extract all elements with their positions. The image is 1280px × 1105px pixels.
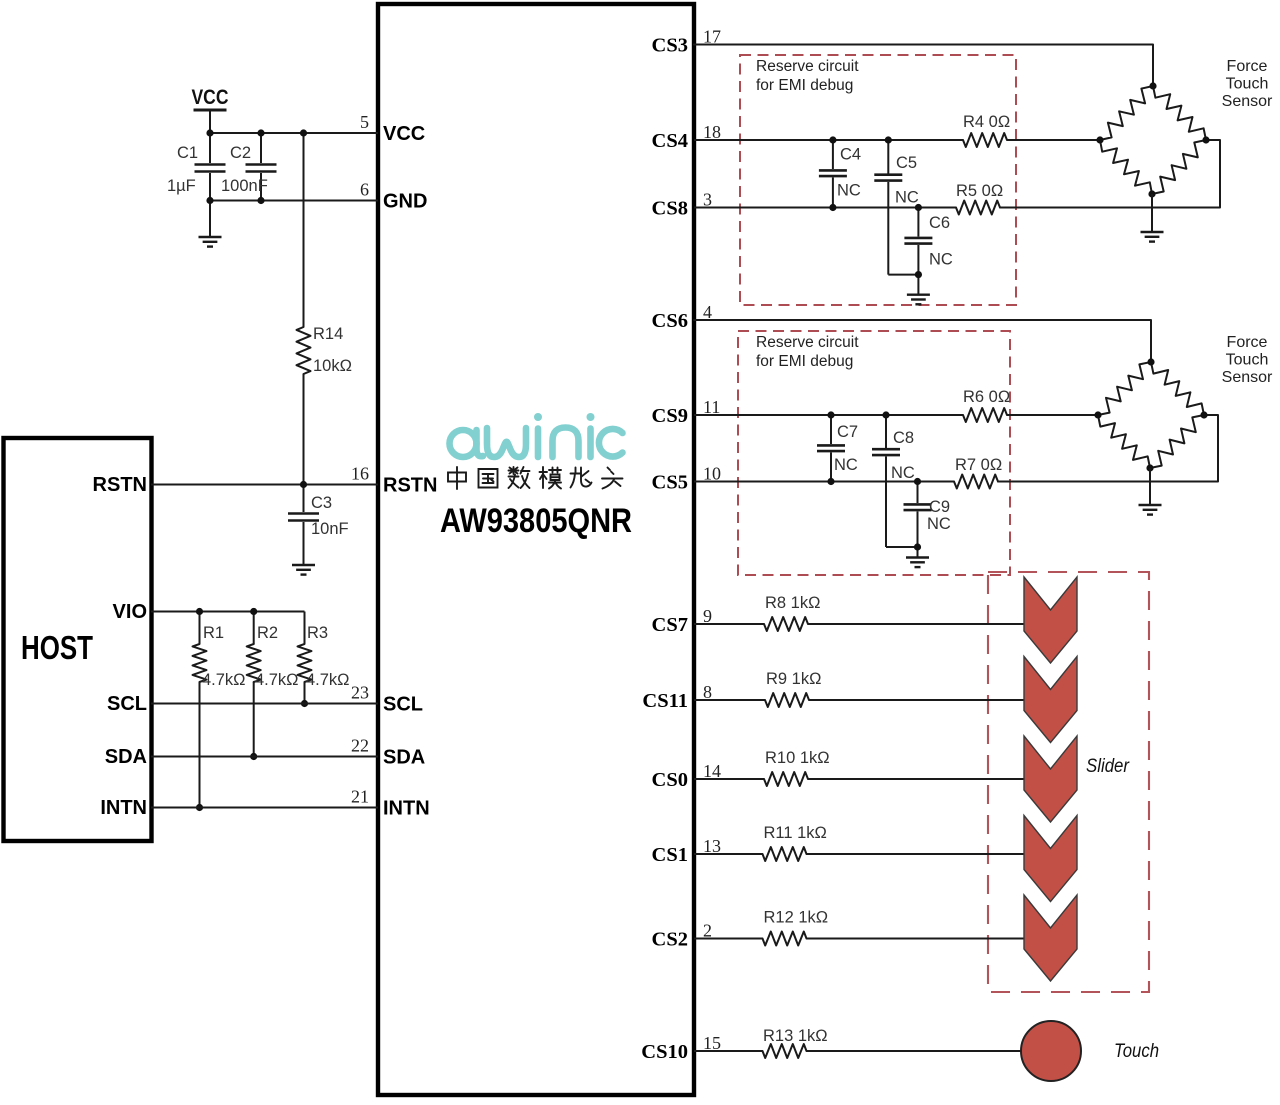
svg-text:10kΩ: 10kΩ <box>313 357 352 375</box>
svg-text:VCC: VCC <box>192 85 229 109</box>
svg-text:4.7kΩ: 4.7kΩ <box>255 671 299 689</box>
svg-text:R10 1kΩ: R10 1kΩ <box>765 749 830 767</box>
svg-text:CS3: CS3 <box>652 35 688 57</box>
svg-text:R13 1kΩ: R13 1kΩ <box>763 1027 828 1045</box>
svg-text:22: 22 <box>351 736 369 756</box>
svg-text:R1: R1 <box>203 624 224 642</box>
svg-text:C6: C6 <box>929 214 950 232</box>
svg-text:AW93805QNR: AW93805QNR <box>440 502 632 540</box>
svg-text:C4: C4 <box>840 146 861 164</box>
svg-text:6: 6 <box>360 180 369 200</box>
svg-text:Touch: Touch <box>1114 1040 1159 1062</box>
svg-text:4.7kΩ: 4.7kΩ <box>202 671 246 689</box>
svg-text:Slider: Slider <box>1086 755 1130 777</box>
svg-text:CS5: CS5 <box>652 472 688 494</box>
svg-text:23: 23 <box>351 683 369 703</box>
svg-text:HOST: HOST <box>21 629 93 666</box>
svg-text:R11 1kΩ: R11 1kΩ <box>764 824 827 842</box>
svg-text:R6 0Ω: R6 0Ω <box>963 388 1010 406</box>
svg-text:C9: C9 <box>929 498 950 516</box>
svg-text:C8: C8 <box>893 429 914 447</box>
svg-text:100nF: 100nF <box>221 177 268 195</box>
svg-text:CS1: CS1 <box>652 844 688 866</box>
svg-text:Reserve circuit: Reserve circuit <box>756 334 859 351</box>
svg-text:Touch: Touch <box>1226 76 1269 93</box>
svg-text:NC: NC <box>929 251 953 269</box>
svg-text:C3: C3 <box>311 494 332 512</box>
svg-text:21: 21 <box>351 787 369 807</box>
svg-text:C5: C5 <box>896 154 917 172</box>
svg-text:RSTN: RSTN <box>93 474 147 496</box>
svg-text:CS11: CS11 <box>642 690 688 712</box>
svg-text:CS4: CS4 <box>652 130 688 152</box>
svg-text:Touch: Touch <box>1226 352 1269 369</box>
svg-text:NC: NC <box>895 189 919 207</box>
svg-text:R7 0Ω: R7 0Ω <box>955 456 1002 474</box>
svg-text:16: 16 <box>351 464 369 484</box>
svg-text:SDA: SDA <box>383 747 425 769</box>
svg-text:R9 1kΩ: R9 1kΩ <box>766 670 821 688</box>
svg-text:for EMI debug: for EMI debug <box>756 77 853 94</box>
svg-text:VCC: VCC <box>383 123 425 145</box>
svg-text:VIO: VIO <box>113 601 147 623</box>
svg-text:C1: C1 <box>177 144 198 162</box>
svg-text:1µF: 1µF <box>167 177 196 195</box>
svg-text:R8 1kΩ: R8 1kΩ <box>765 594 820 612</box>
svg-text:R14: R14 <box>313 325 343 343</box>
svg-text:5: 5 <box>360 112 369 132</box>
svg-text:INTN: INTN <box>383 798 430 820</box>
svg-text:Reserve circuit: Reserve circuit <box>756 58 859 75</box>
svg-text:C7: C7 <box>837 423 858 441</box>
svg-text:R4 0Ω: R4 0Ω <box>963 113 1010 131</box>
svg-text:NC: NC <box>834 456 858 474</box>
svg-text:CS0: CS0 <box>652 769 688 791</box>
svg-text:4.7kΩ: 4.7kΩ <box>306 671 350 689</box>
svg-text:GND: GND <box>383 191 427 213</box>
svg-text:R2: R2 <box>257 624 278 642</box>
svg-text:INTN: INTN <box>100 797 147 819</box>
svg-text:R12 1kΩ: R12 1kΩ <box>764 909 829 927</box>
svg-text:Sensor: Sensor <box>1222 369 1273 386</box>
svg-text:CS7: CS7 <box>652 614 688 636</box>
svg-text:R5 0Ω: R5 0Ω <box>956 182 1003 200</box>
svg-text:NC: NC <box>837 182 861 200</box>
svg-text:CS2: CS2 <box>652 929 688 951</box>
svg-text:CS6: CS6 <box>652 310 688 332</box>
svg-text:R3: R3 <box>307 624 328 642</box>
svg-text:10nF: 10nF <box>311 520 349 538</box>
svg-text:SCL: SCL <box>383 694 423 716</box>
svg-text:Force: Force <box>1227 58 1268 75</box>
svg-text:CS8: CS8 <box>652 198 688 220</box>
svg-text:C2: C2 <box>230 144 251 162</box>
svg-text:for EMI debug: for EMI debug <box>756 353 853 370</box>
svg-text:Force: Force <box>1227 334 1268 351</box>
svg-text:NC: NC <box>927 515 951 533</box>
svg-text:SCL: SCL <box>107 693 147 715</box>
svg-text:CS10: CS10 <box>641 1041 688 1063</box>
svg-text:CS9: CS9 <box>652 405 688 427</box>
svg-text:Sensor: Sensor <box>1222 93 1273 110</box>
svg-text:RSTN: RSTN <box>383 475 437 497</box>
svg-text:NC: NC <box>891 464 915 482</box>
svg-text:SDA: SDA <box>105 746 147 768</box>
